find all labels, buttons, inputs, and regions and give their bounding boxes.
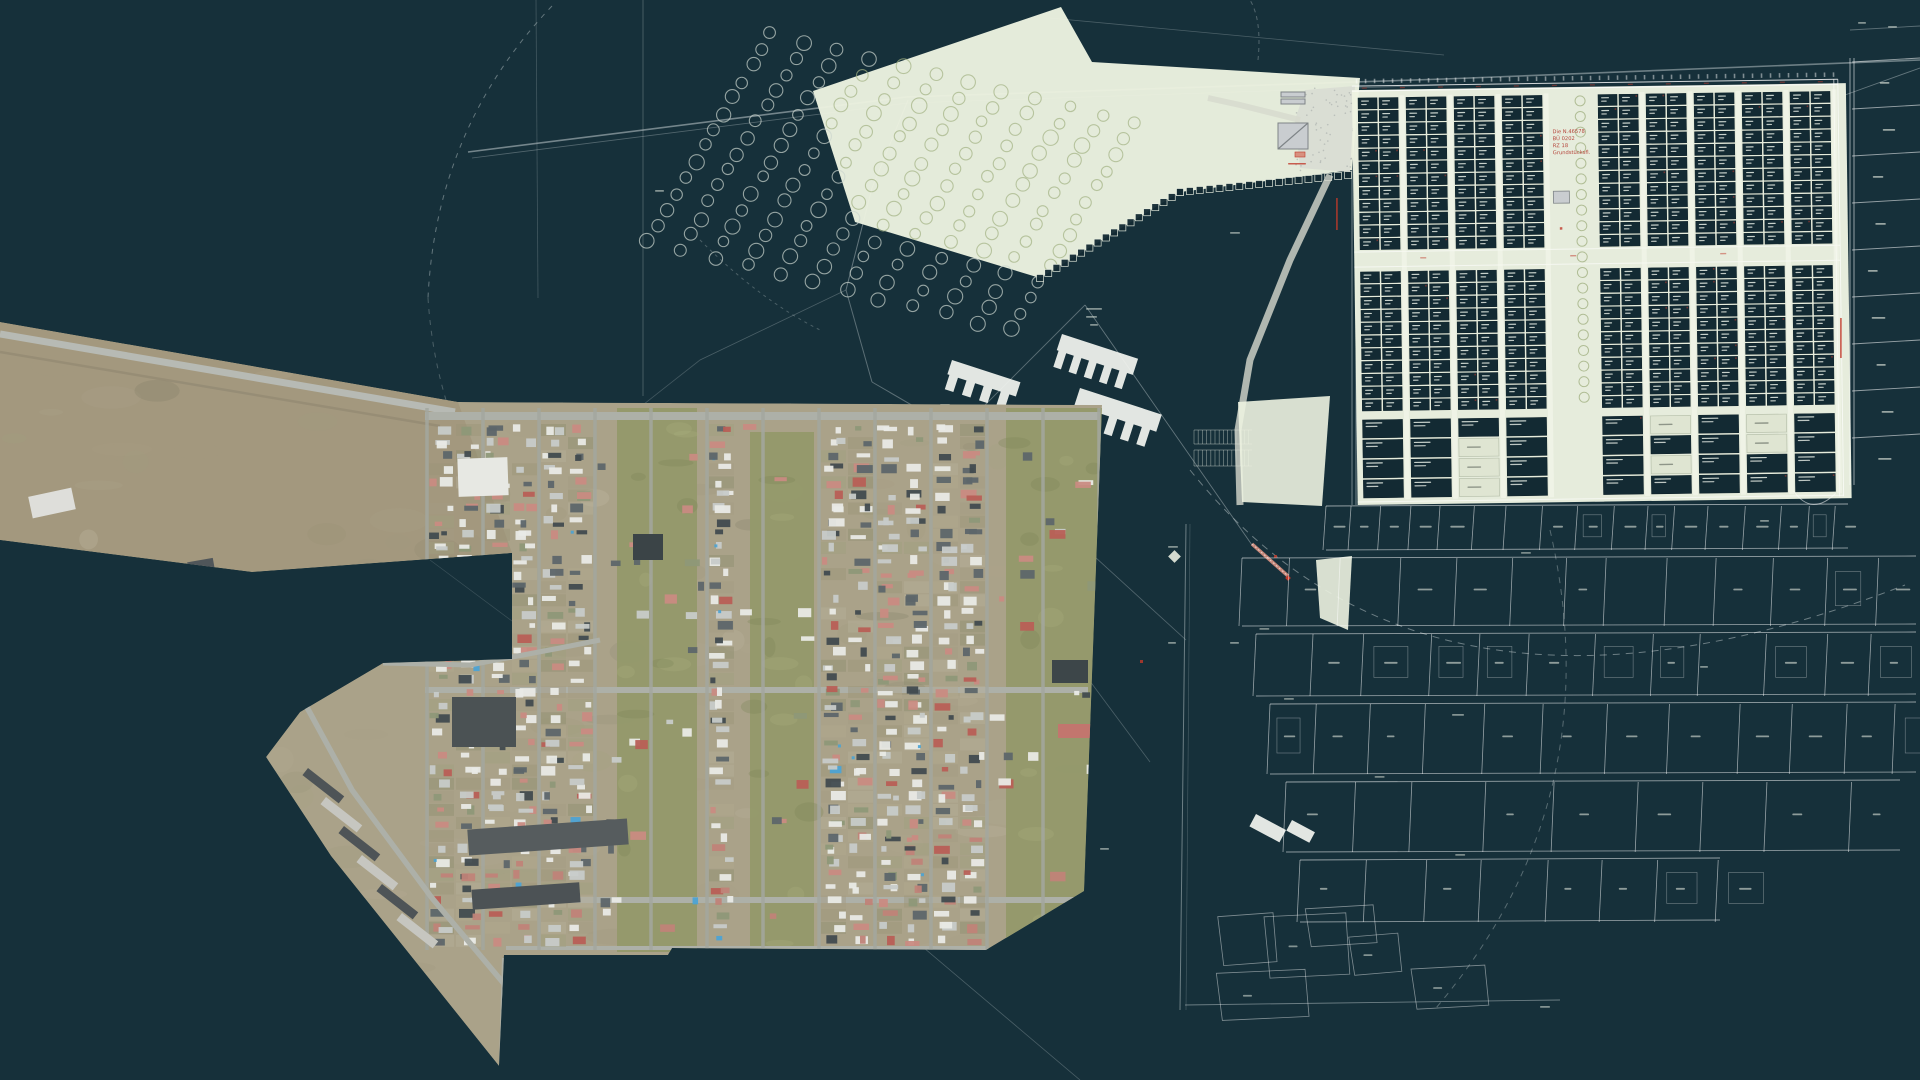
allotment-grid: Die N.46578BÜ 0202RZ 18Grundstücksfl. <box>1352 72 1852 511</box>
photo-building <box>1052 660 1088 683</box>
red-annotation-line: Grundstücksfl. <box>1553 150 1591 157</box>
red-street-label <box>1336 198 1338 230</box>
red-annotation-line: RZ 18 <box>1553 143 1569 149</box>
map-viewport[interactable]: Die N.46578BÜ 0202RZ 18Grundstücksfl. <box>0 0 1920 1080</box>
red-annotation-line: BÜ 0202 <box>1553 135 1575 142</box>
photo-building <box>633 534 663 560</box>
photo-building <box>452 697 516 747</box>
map-canvas: Die N.46578BÜ 0202RZ 18Grundstücksfl. <box>0 0 1920 1080</box>
photo-building <box>1058 724 1092 738</box>
plan-building <box>1281 99 1305 104</box>
container-marker <box>1295 152 1305 157</box>
red-street-label <box>1840 318 1842 358</box>
plan-building <box>1281 92 1305 97</box>
red-annotation-line: Die N.46578 <box>1552 129 1584 135</box>
photo-building <box>457 457 508 497</box>
